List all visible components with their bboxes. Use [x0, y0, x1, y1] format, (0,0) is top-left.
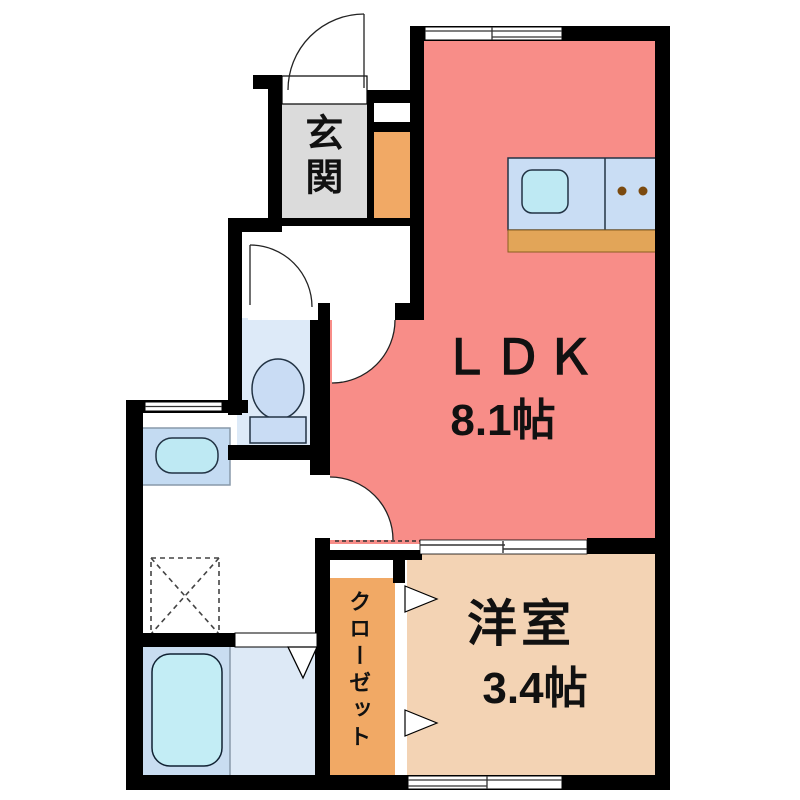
washbasin-icon: [156, 438, 218, 473]
wall-segment: [393, 558, 405, 583]
sliding-door-ldk-western: [420, 540, 587, 554]
closet-label: クローゼット: [347, 590, 370, 752]
window-frame: [425, 27, 562, 40]
window-top: [425, 27, 562, 40]
ldk-room-label: ＬＤＫ: [425, 334, 615, 384]
kitchen-base-strip: [508, 230, 657, 252]
wall-segment: [395, 303, 424, 320]
wall-segment: [315, 538, 330, 775]
toilet-bowl-icon: [252, 359, 304, 419]
bath-door-threshold: [235, 633, 317, 647]
closet-top-opening: [330, 558, 393, 578]
toilet-door-threshold: [248, 303, 318, 320]
toilet-door-arc: [250, 245, 312, 307]
ldk-door-threshold: [330, 306, 395, 320]
window-frame: [408, 776, 562, 789]
entrance-label: 玄関: [299, 113, 339, 201]
window-bottom: [408, 776, 562, 789]
wall-segment: [655, 26, 670, 790]
wall-segment: [228, 218, 242, 415]
wall-segment: [268, 75, 282, 230]
floor-plan-drawing: [0, 0, 800, 800]
washing-machine-pan-outline: [151, 558, 219, 634]
ldk-closet-floor-strip: [330, 544, 422, 551]
floor-plan: 玄関 ＬＤＫ 8.1帖 洋室 3.4帖 クローゼット: [0, 0, 800, 800]
entrance-cabinet-opening: [374, 103, 410, 122]
bathtub-icon: [152, 654, 222, 766]
kitchen-sink-icon: [522, 170, 568, 213]
wall-segment: [126, 400, 143, 790]
toilet-tank-icon: [250, 417, 306, 443]
stove-burner-icon: [639, 187, 648, 196]
western-room-size-label: 3.4帖: [440, 666, 630, 712]
window-left: [145, 402, 222, 411]
wall-segment: [126, 775, 670, 790]
washroom-door-threshold: [318, 475, 330, 538]
wall-segment: [587, 538, 657, 554]
entrance-door-threshold: [282, 76, 367, 104]
wall-segment: [410, 39, 424, 310]
stove-burner-icon: [618, 187, 627, 196]
wall-segment: [143, 633, 235, 647]
washing-machine-pan-diagonal-2: [151, 558, 219, 634]
ldk-size-label: 8.1帖: [408, 398, 598, 444]
washing-machine-pan-icon: [151, 558, 219, 634]
wall-segment: [328, 550, 422, 560]
entrance-cabinet: [370, 132, 410, 218]
western-room-label: 洋室: [426, 598, 616, 651]
washing-machine-pan-diagonal-1: [151, 558, 219, 634]
wall-segment: [310, 303, 330, 475]
wall-segment: [367, 90, 374, 222]
entrance-step-edge: [282, 218, 410, 226]
